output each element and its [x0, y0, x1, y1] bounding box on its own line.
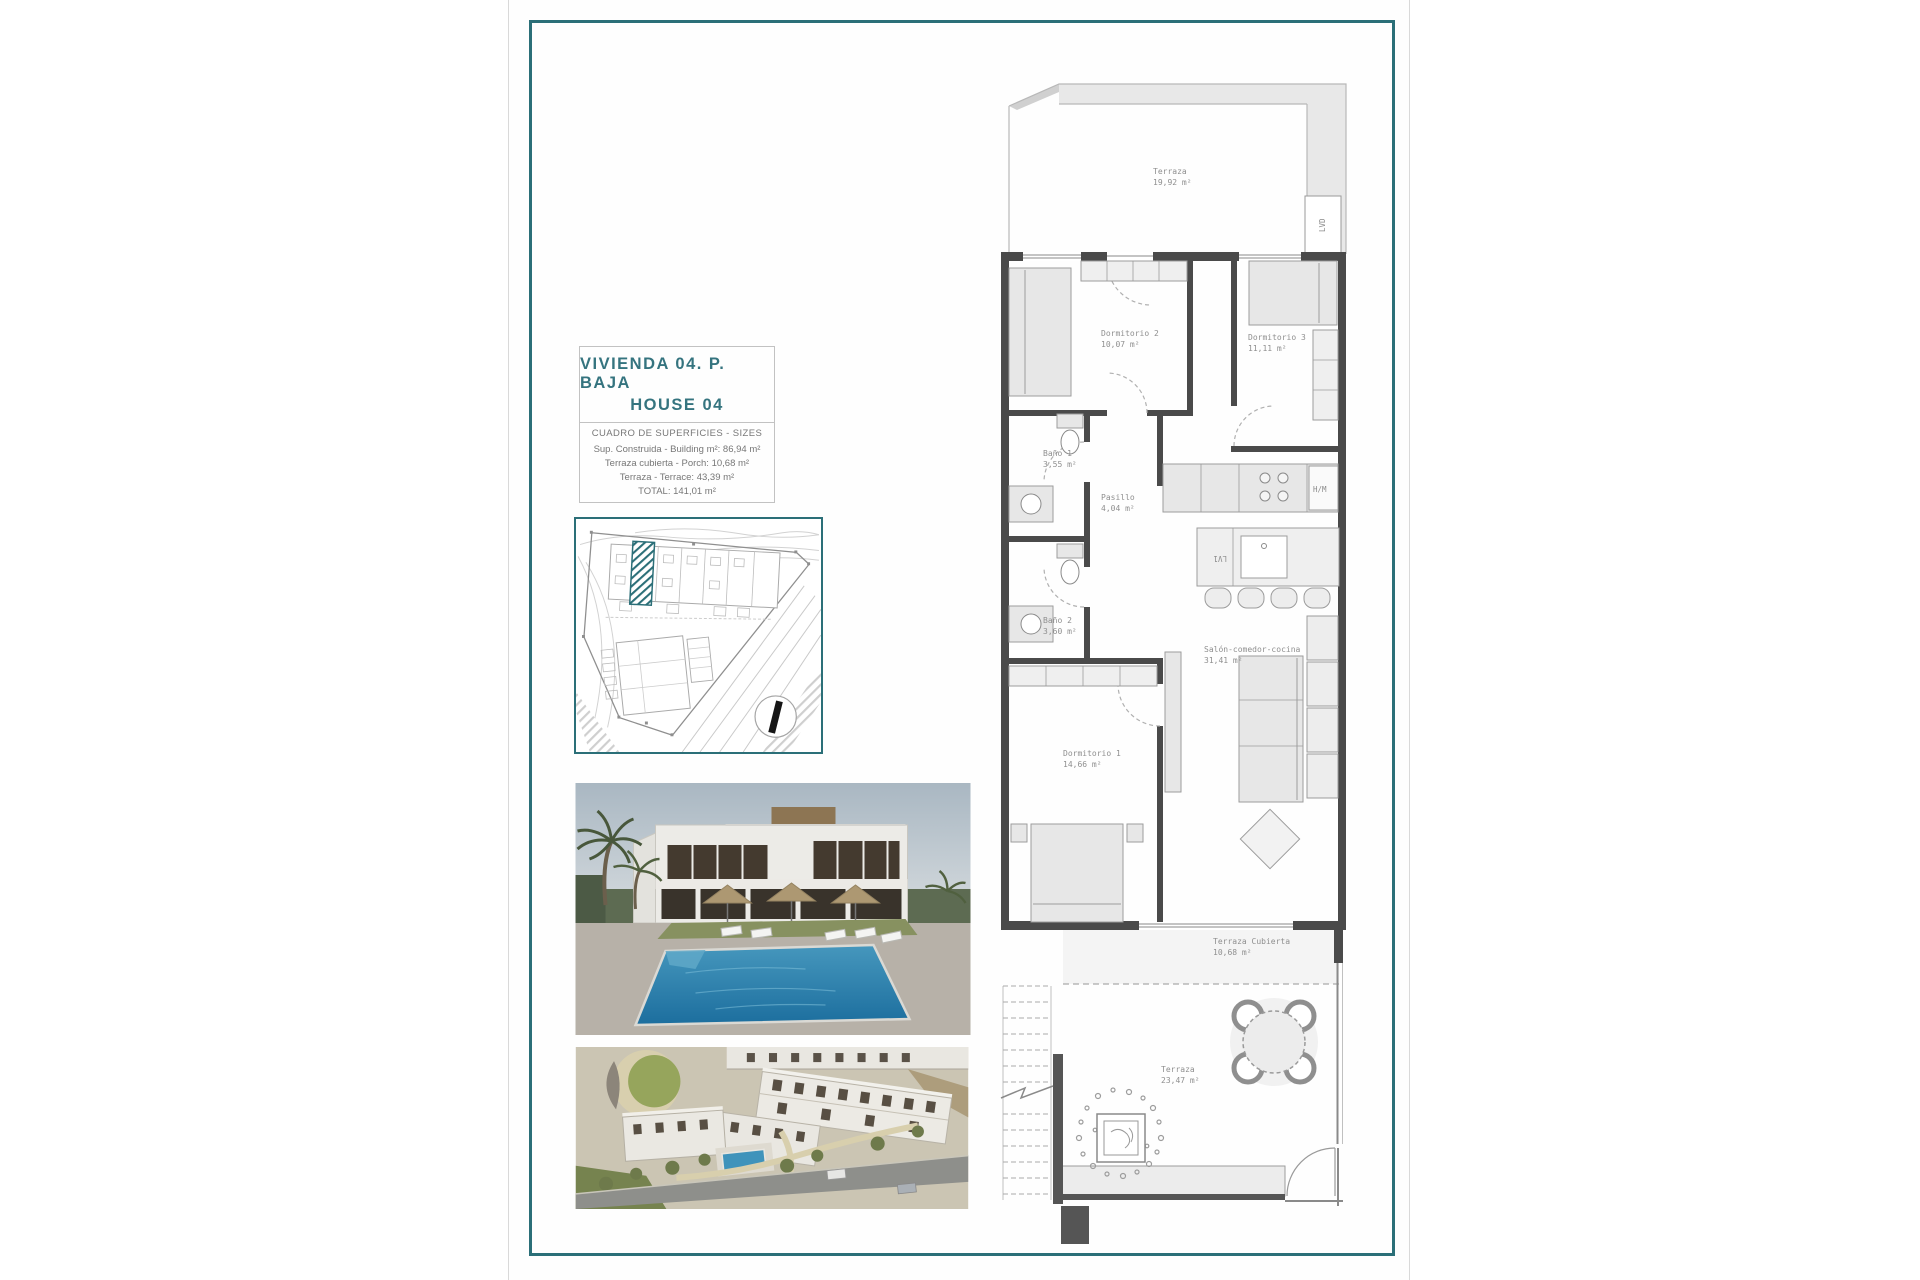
svg-text:10,68 m²: 10,68 m²: [1213, 948, 1252, 957]
site-plan: [574, 517, 823, 754]
room-label-bano-1: Baño 1 3,55 m²: [1043, 449, 1077, 469]
floor-plan: LVD: [996, 80, 1396, 1250]
sizes-row-porch: Terraza cubierta - Porch: 10,68 m²: [605, 457, 749, 470]
wall-pier: [1053, 1054, 1063, 1204]
render-aerial-illustration: [574, 1047, 970, 1209]
render-pool-illustration: [574, 783, 972, 1035]
room-label-terraza-top: Terraza 19,92 m²: [1153, 167, 1192, 187]
covered-terrace: [1063, 925, 1343, 984]
tall-units-label: H/M: [1313, 485, 1327, 494]
sofa: [1239, 656, 1303, 802]
bedroom2-furniture: [1009, 261, 1187, 396]
svg-text:19,92 m²: 19,92 m²: [1153, 178, 1192, 187]
paper-page: VIVIENDA 04. P. BAJA HOUSE 04 CUADRO DE …: [508, 0, 1410, 1280]
bar-stools: [1205, 588, 1330, 608]
bedroom1-furniture: [1009, 666, 1157, 922]
room-label-terraza-bottom: Terraza 23,47 m²: [1161, 1065, 1200, 1085]
title-line-es: VIVIENDA 04. P. BAJA: [580, 355, 774, 393]
far-buildings: [727, 1047, 968, 1069]
lawn-circle: [628, 1055, 680, 1107]
svg-text:Dormitorio 3: Dormitorio 3: [1248, 333, 1306, 342]
svg-text:11,11 m²: 11,11 m²: [1248, 344, 1287, 353]
svg-text:3,55 m²: 3,55 m²: [1043, 460, 1077, 469]
svg-text:14,66 m²: 14,66 m²: [1063, 760, 1102, 769]
building-facade: [634, 807, 908, 924]
sizes-row-building: Sup. Construida - Building m²: 86,94 m²: [594, 443, 761, 456]
room-label-pasillo: Pasillo 4,04 m²: [1101, 493, 1135, 513]
terrace: [1001, 963, 1343, 1244]
svg-text:23,47 m²: 23,47 m²: [1161, 1076, 1200, 1085]
svg-text:Terraza: Terraza: [1153, 167, 1187, 176]
room-label-dormitorio-3: Dormitorio 3 11,11 m²: [1248, 333, 1306, 353]
site-plan-drawing: [576, 519, 821, 752]
render-aerial-view: [574, 1047, 970, 1209]
left-building: [622, 1106, 726, 1161]
render-pool-view: [574, 783, 972, 1035]
upper-building: [608, 540, 781, 619]
sizes-header: CUADRO DE SUPERFICIES - SIZES: [592, 427, 762, 440]
lower-building: [601, 633, 716, 717]
svg-text:Salón-comedor-cocina: Salón-comedor-cocina: [1204, 644, 1301, 654]
svg-text:10,07 m²: 10,07 m²: [1101, 340, 1140, 349]
stairs: [1001, 986, 1053, 1200]
svg-text:Pasillo: Pasillo: [1101, 493, 1135, 502]
terrace-planter-wall: [1061, 1166, 1285, 1196]
title-block: VIVIENDA 04. P. BAJA HOUSE 04: [579, 346, 775, 423]
highlighted-unit: [630, 541, 655, 605]
coffee-table: [1240, 809, 1299, 868]
kitchen: H/M LV1: [1163, 464, 1339, 608]
room-label-dormitorio-2: Dormitorio 2 10,07 m²: [1101, 329, 1159, 349]
plan-sheet: VIVIENDA 04. P. BAJA HOUSE 04 CUADRO DE …: [0, 0, 1920, 1280]
terrace-dining-set: [1230, 998, 1318, 1086]
svg-text:Dormitorio 1: Dormitorio 1: [1063, 749, 1121, 758]
tv-sideboard: [1165, 652, 1181, 792]
title-line-en: HOUSE 04: [630, 396, 724, 415]
corner-pillar: [1061, 1206, 1089, 1244]
sizes-table: CUADRO DE SUPERFICIES - SIZES Sup. Const…: [579, 422, 775, 503]
sizes-row-total: TOTAL: 141,01 m²: [638, 485, 716, 498]
svg-text:Baño 1: Baño 1: [1043, 449, 1072, 458]
svg-text:Terraza: Terraza: [1161, 1065, 1195, 1074]
svg-text:Baño 2: Baño 2: [1043, 616, 1072, 625]
svg-text:31,41 m²: 31,41 m²: [1204, 656, 1243, 665]
svg-text:3,60 m²: 3,60 m²: [1043, 627, 1077, 636]
laundry-label: LVD: [1318, 218, 1327, 232]
sizes-row-terrace: Terraza - Terrace: 43,39 m²: [620, 471, 734, 484]
terrace-planter: [1077, 1088, 1164, 1179]
room-label-dormitorio-1: Dormitorio 1 14,66 m²: [1063, 749, 1121, 769]
island-sink: [1241, 536, 1287, 578]
svg-text:Dormitorio 2: Dormitorio 2: [1101, 329, 1159, 338]
dishwasher-label: LV1: [1213, 554, 1227, 563]
north-arrow: [755, 696, 796, 737]
svg-text:Terraza Cubierta: Terraza Cubierta: [1213, 937, 1290, 946]
hedge-left: [576, 875, 606, 929]
svg-text:4,04 m²: 4,04 m²: [1101, 504, 1135, 513]
